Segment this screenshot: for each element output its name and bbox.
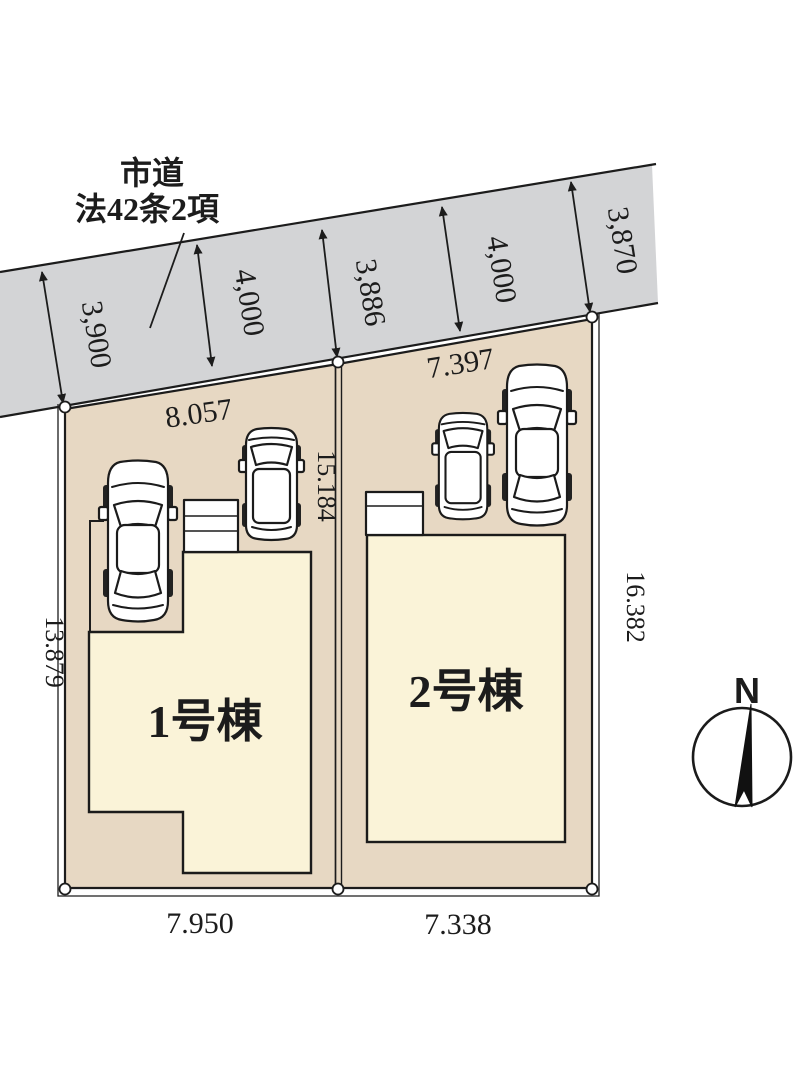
lot1-divider-dim: 15.184 [312,450,341,522]
building-1-label: 1号棟 [148,696,264,747]
lot2-bottom-dim: 7.338 [424,908,492,941]
car-sedan-lot1 [99,461,177,622]
lot2-right-dim: 16.382 [621,571,650,643]
lot1-bottom-dim: 7.950 [166,907,234,940]
compass: N [693,670,791,807]
porch-1 [184,500,238,552]
lot1-left-dim: 13.879 [40,616,69,688]
corner-marker-a [60,402,71,413]
site-plan: 市道 法42条2項 3,900 4,000 3,886 4,000 3,870 … [0,0,802,1088]
porch-2 [366,492,423,535]
compass-north-label: N [734,670,760,711]
car-van-lot2 [432,413,494,519]
car-van-lot1 [239,428,304,540]
corner-marker-f [587,884,598,895]
corner-marker-d [60,884,71,895]
road-label-line1: 市道 [120,155,184,191]
site-plan-svg: 市道 法42条2項 3,900 4,000 3,886 4,000 3,870 … [0,0,802,1088]
car-sedan-lot2 [498,365,576,526]
road-label-line2: 法42条2項 [75,191,220,227]
compass-needle-icon [735,704,752,807]
building-2-label: 2号棟 [409,666,525,717]
corner-marker-c [587,312,598,323]
corner-marker-e [333,884,344,895]
corner-marker-b [333,357,344,368]
